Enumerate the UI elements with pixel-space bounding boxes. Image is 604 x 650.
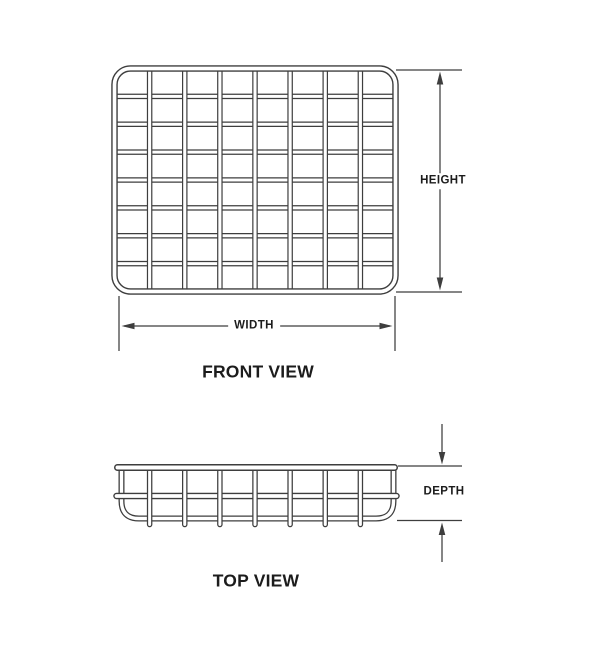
- diagram-canvas: [0, 0, 604, 650]
- height-arrow-down-icon: [437, 278, 444, 291]
- top-view-title: TOP VIEW: [209, 571, 304, 591]
- top-view-drawing: [117, 468, 397, 525]
- depth-arrow-up-icon: [439, 523, 446, 536]
- width-arrow-right-icon: [380, 323, 393, 330]
- depth-arrow-down-icon: [439, 452, 446, 465]
- front-view-drawing: [115, 69, 396, 292]
- depth-label: DEPTH: [418, 484, 471, 500]
- front-view-grid-wires: [116, 70, 394, 290]
- width-label: WIDTH: [228, 318, 280, 334]
- width-arrow-left-icon: [122, 323, 135, 330]
- height-label: HEIGHT: [414, 173, 472, 189]
- diagram-page: HEIGHT WIDTH FRONT VIEW DEPTH TOP VIEW: [0, 0, 604, 650]
- front-view-title: FRONT VIEW: [198, 362, 318, 382]
- height-arrow-up-icon: [437, 72, 444, 85]
